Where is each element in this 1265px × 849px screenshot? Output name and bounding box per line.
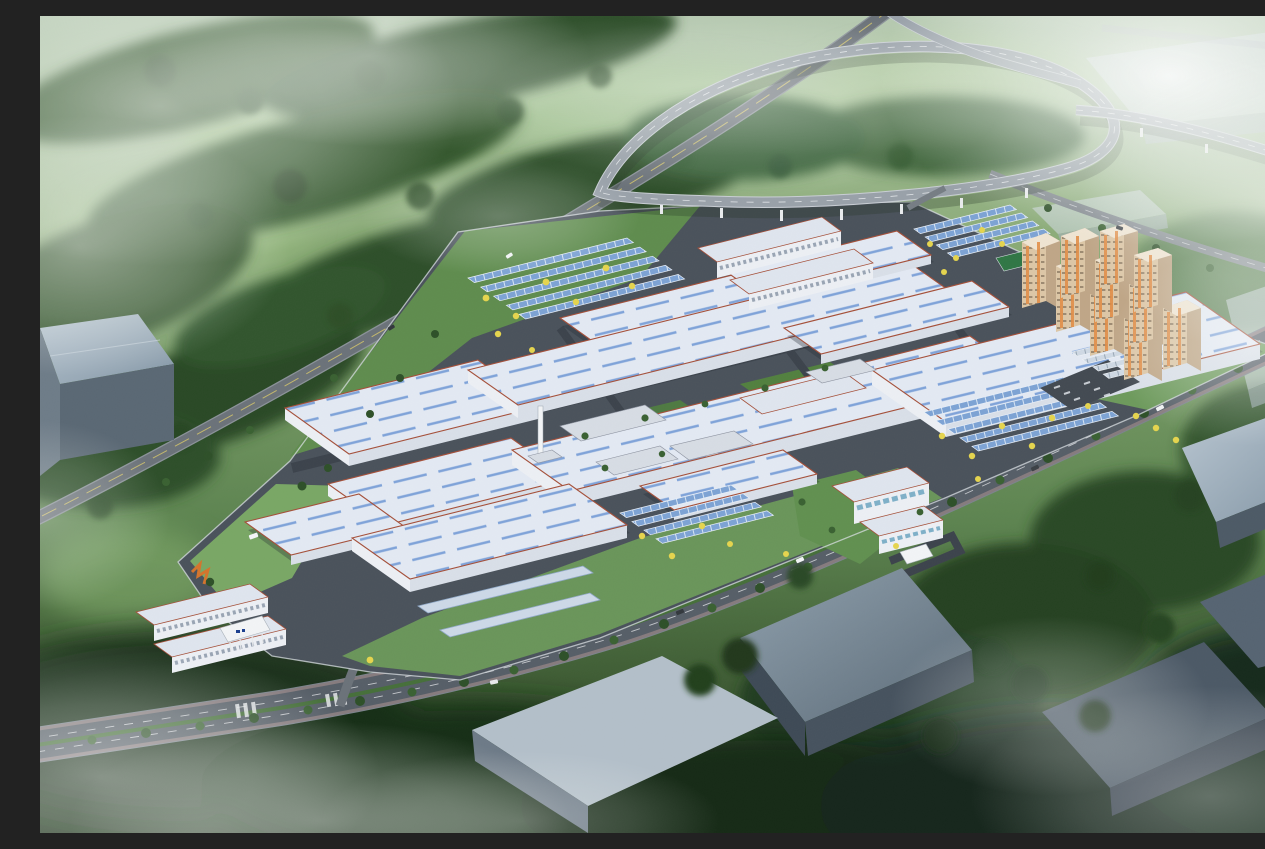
chimney [538,406,543,458]
aerial-rendering [40,16,1265,833]
gate-logo [236,630,240,633]
